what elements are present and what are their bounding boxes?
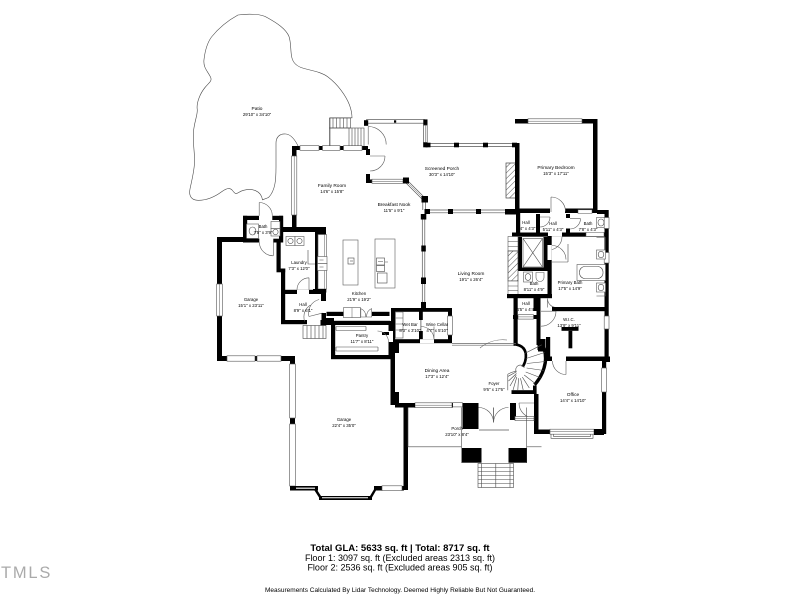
svg-text:5'11" x 4'3": 5'11" x 4'3": [543, 227, 564, 232]
svg-text:Bath: Bath: [584, 221, 593, 226]
svg-text:17'3" x 12'4": 17'3" x 12'4": [425, 374, 449, 379]
svg-text:8'11" x 4'9": 8'11" x 4'9": [524, 287, 545, 292]
svg-text:Bath: Bath: [259, 224, 268, 229]
svg-text:Foyer: Foyer: [489, 381, 501, 386]
svg-text:Garage: Garage: [337, 417, 352, 422]
svg-text:22'4" x 35'0": 22'4" x 35'0": [332, 423, 356, 428]
svg-text:Porch: Porch: [451, 426, 463, 431]
svg-text:Measurements Calculated By Lid: Measurements Calculated By Lidar Technol…: [265, 587, 535, 594]
svg-text:15'3" x 17'11": 15'3" x 17'11": [543, 171, 569, 176]
svg-text:Floor 1: 3097 sq. ft (Excluded: Floor 1: 3097 sq. ft (Excluded areas 231…: [305, 553, 495, 563]
svg-text:17'5" x 14'9": 17'5" x 14'9": [558, 286, 582, 291]
svg-text:21'9" x 19'2": 21'9" x 19'2": [347, 297, 371, 302]
svg-text:9'6" x 17'6": 9'6" x 17'6": [483, 387, 505, 392]
svg-text:TMLS: TMLS: [1, 564, 52, 582]
svg-text:4'7" x 5'10": 4'7" x 5'10": [426, 328, 448, 333]
svg-text:4'4" x 4'3": 4'4" x 4'3": [517, 226, 536, 231]
svg-text:Laundry: Laundry: [291, 260, 307, 265]
svg-text:Hall: Hall: [522, 301, 529, 306]
svg-text:23'10" x 8'4": 23'10" x 8'4": [445, 432, 469, 437]
svg-text:13'9" x 9'11": 13'9" x 9'11": [557, 323, 581, 328]
svg-text:Pantry: Pantry: [356, 333, 369, 338]
svg-text:Hall: Hall: [299, 302, 306, 307]
svg-text:7'3" x 12'0": 7'3" x 12'0": [288, 266, 310, 271]
svg-text:Wet Bar: Wet Bar: [402, 322, 418, 327]
svg-text:29'10" x 34'10": 29'10" x 34'10": [243, 112, 272, 117]
svg-text:8'9" x 6'1": 8'9" x 6'1": [294, 308, 313, 313]
svg-text:4'5" x 4'4": 4'5" x 4'4": [517, 307, 536, 312]
svg-text:7'8" x 4'3": 7'8" x 4'3": [579, 227, 598, 232]
svg-text:7'5" x 3'9": 7'5" x 3'9": [254, 230, 273, 235]
svg-text:Primary Bath: Primary Bath: [558, 280, 583, 285]
svg-text:11'5" x 9'1": 11'5" x 9'1": [384, 208, 405, 213]
svg-text:Hall: Hall: [549, 221, 556, 226]
svg-text:Garage: Garage: [244, 297, 259, 302]
svg-text:Hall: Hall: [522, 220, 529, 225]
svg-text:14'4" x 14'10": 14'4" x 14'10": [560, 398, 586, 403]
svg-text:11'7" x 8'11": 11'7" x 8'11": [351, 339, 374, 344]
svg-text:Wine Cellar: Wine Cellar: [426, 322, 449, 327]
svg-text:15'1" x 23'11": 15'1" x 23'11": [238, 303, 264, 308]
svg-text:30'3" x 14'10": 30'3" x 14'10": [429, 172, 455, 177]
svg-text:14'6" x 15'8": 14'6" x 15'8": [320, 189, 344, 194]
svg-text:W.I.C.: W.I.C.: [563, 317, 575, 322]
svg-text:Bath: Bath: [530, 281, 539, 286]
svg-text:8'3" x 3'10": 8'3" x 3'10": [399, 328, 421, 333]
svg-text:Floor 2: 2536 sq. ft (Excluded: Floor 2: 2536 sq. ft (Excluded areas 905…: [307, 563, 492, 573]
svg-text:Kitchen: Kitchen: [352, 291, 367, 296]
svg-text:19'1" x 26'4": 19'1" x 26'4": [459, 277, 483, 282]
